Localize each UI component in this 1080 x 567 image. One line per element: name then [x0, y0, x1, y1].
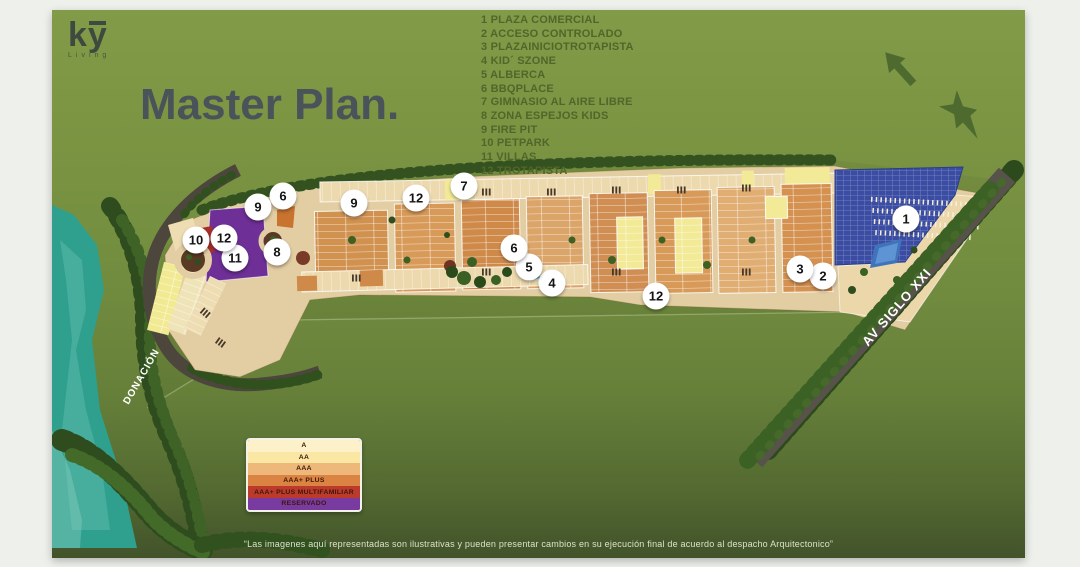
amenity-item: 10 PETPARK [481, 137, 634, 151]
amenity-item: 5 ALBERCA [481, 69, 634, 83]
disclaimer-text: “Las imagenes aquí representadas son ilu… [52, 539, 1025, 549]
amenity-item: 11 VILLAS [481, 151, 634, 165]
amenity-item: 2 ACCESO CONTROLADO [481, 28, 634, 42]
amenity-item: 4 KID´ SZONE [481, 55, 634, 69]
legend-box: AAAAAAAAA+ PLUSAAA+ PLUS MULTIFAMILIARRE… [246, 438, 362, 512]
legend-row: AA [248, 452, 360, 464]
legend-row: AAA [248, 463, 360, 475]
amenity-item: 7 GIMNASIO AL AIRE LIBRE [481, 96, 634, 110]
villas-block [206, 206, 268, 282]
logo-brand-text: ky [68, 20, 108, 50]
logo-macron-bar [89, 21, 106, 25]
amenity-list: 1 PLAZA COMERCIAL2 ACCESO CONTROLADO3 PL… [481, 14, 634, 178]
legend-row: RESERVADO [248, 498, 360, 510]
amenity-item: 1 PLAZA COMERCIAL [481, 14, 634, 28]
ky-living-logo: ky Living [68, 20, 110, 59]
amenity-item: 3 PLAZAINICIOTROTAPISTA [481, 41, 634, 55]
legend-row: AAA+ PLUS [248, 475, 360, 487]
amenity-item: 12 TROTAPISTA [481, 165, 634, 179]
amenity-item: 9 FIRE PIT [481, 124, 634, 138]
amenity-item: 6 BBQPLACE [481, 83, 634, 97]
legend-row: AAA+ PLUS MULTIFAMILIAR [248, 486, 360, 498]
north-arrows-icon [882, 38, 1012, 148]
page-title: Master Plan. [140, 80, 399, 130]
amenity-item: 8 ZONA ESPEJOS KIDS [481, 110, 634, 124]
masterplan-slide: AV SIGLO XXI DONACIÓN ky Living Master P… [52, 10, 1025, 558]
legend-row: A [248, 440, 360, 452]
